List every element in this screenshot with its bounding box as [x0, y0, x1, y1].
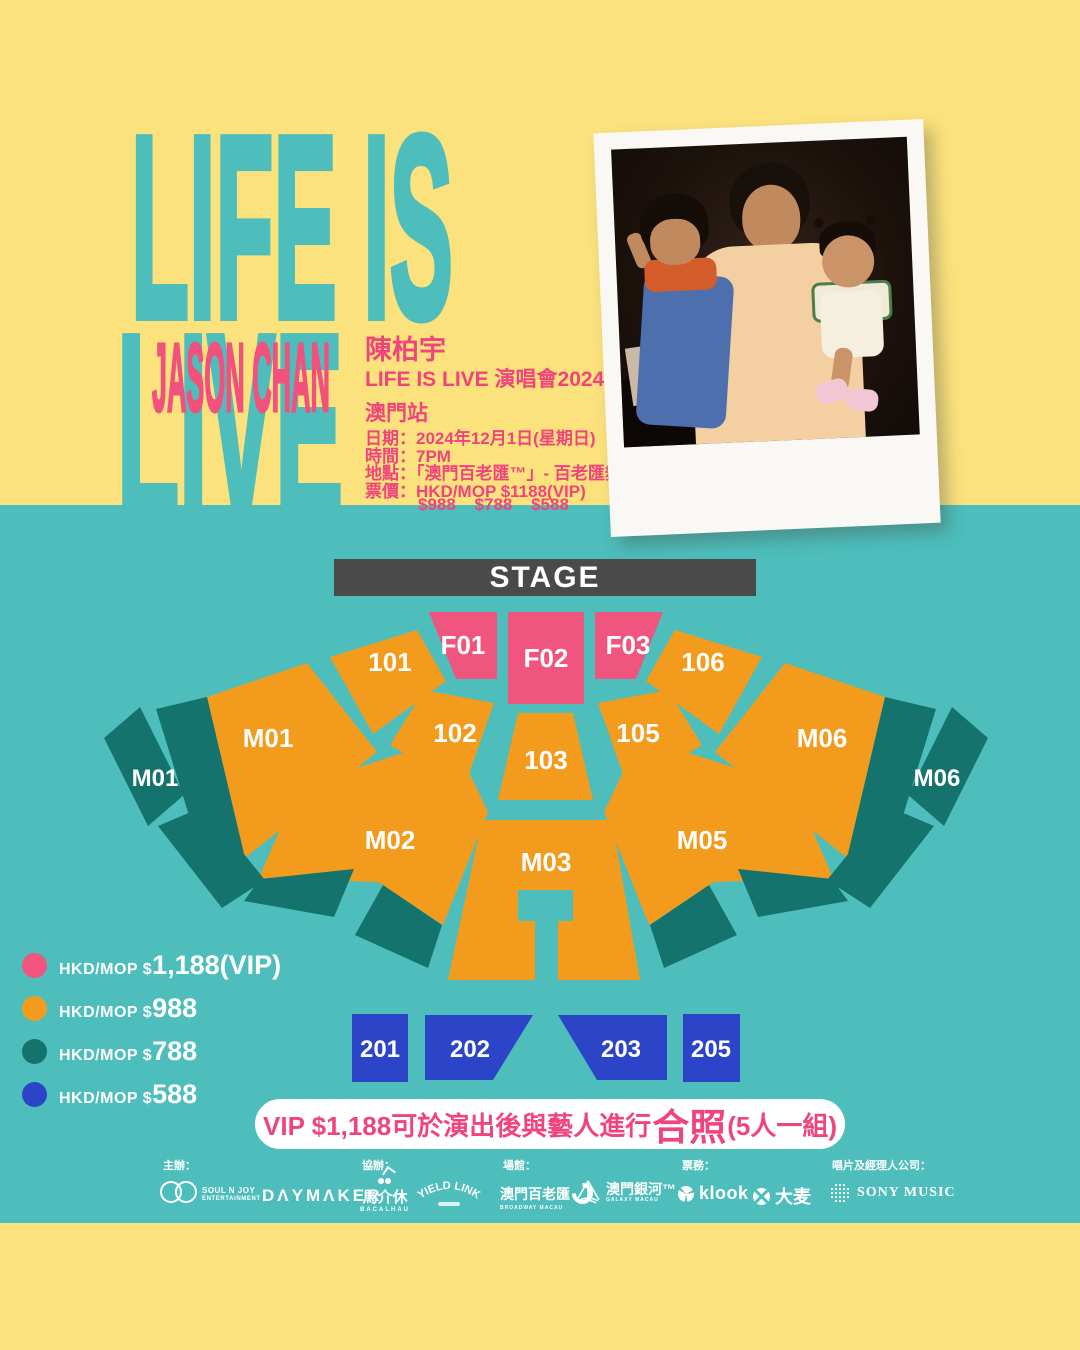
label-M06: M06	[797, 723, 848, 753]
label-M01: M01	[243, 723, 294, 753]
cat3-color-dot	[22, 1082, 47, 1107]
label-M03: M03	[521, 847, 572, 877]
photo-artist-with-kids	[611, 137, 920, 448]
label-106: 106	[681, 647, 724, 677]
bacalhau-zh-text: 馬介休	[360, 1190, 410, 1205]
damai-pinwheel-icon	[753, 1188, 770, 1205]
galaxy-zh-text: 澳門銀河™	[606, 1182, 676, 1196]
photo-kid-overalls	[635, 272, 734, 429]
label-102: 102	[433, 718, 476, 748]
stage-label: STAGE	[489, 561, 600, 594]
yield-link-arch-icon: YIELD LINK	[414, 1176, 484, 1210]
photo-baby-pigtail	[814, 218, 823, 227]
legend-prefix: HKD/MOP $	[59, 1090, 152, 1107]
sony-music-logo: SONY MUSIC	[830, 1183, 956, 1203]
label-202: 202	[450, 1036, 490, 1063]
soul-n-joy-rings-icon	[160, 1181, 197, 1208]
organizer-label: 主辦：	[163, 1157, 196, 1173]
ticketing-label: 票務：	[682, 1157, 715, 1173]
photo-baby-pigtail	[866, 216, 875, 225]
svg-text:YIELD LINK: YIELD LINK	[416, 1180, 482, 1201]
vip-color-dot	[22, 953, 47, 978]
legend-price-788: HKD/MOP $788	[59, 1036, 197, 1067]
klook-text: klook	[699, 1183, 749, 1204]
vip-photo-note: VIP $1,188可於演出後與藝人進行合照(5人一組)	[255, 1099, 845, 1149]
legend-price-588: HKD/MOP $588	[59, 1079, 197, 1110]
label-M06-side: M06	[914, 765, 961, 792]
label-M02: M02	[365, 825, 416, 855]
label-205: 205	[691, 1036, 731, 1063]
record-company-label: 唱片及經理人公司：	[832, 1157, 931, 1173]
label-201: 201	[360, 1036, 400, 1063]
legend-row-988: HKD/MOP $988	[22, 987, 281, 1030]
label-M01-side: M01	[132, 765, 179, 792]
galaxy-en-text: GALAXY MACAU	[606, 1198, 676, 1203]
legend-price-vip: HKD/MOP $1,188(VIP)	[59, 950, 281, 981]
legend-value: 988	[152, 993, 197, 1023]
vip-note-text: VIP $1,188可於演出後與藝人進行	[263, 1106, 651, 1143]
damai-text: 大麦	[775, 1183, 811, 1209]
bacalhau-logo: 馬介休 BACALHAU	[360, 1170, 410, 1213]
galaxy-fan-icon	[575, 1180, 601, 1204]
klook-icon	[678, 1186, 694, 1202]
damai-logo: 大麦	[753, 1183, 811, 1209]
broadway-en-text: BROADWAY MACAU	[500, 1206, 593, 1211]
vip-note-highlight: 合照	[652, 1097, 726, 1151]
legend-row-588: HKD/MOP $588	[22, 1073, 281, 1116]
event-city: 澳門站	[365, 397, 428, 427]
legend-value: 588	[152, 1079, 197, 1109]
polaroid-photo	[593, 119, 940, 537]
label-105: 105	[616, 718, 659, 748]
label-F01: F01	[441, 630, 486, 660]
klook-logo: klook	[678, 1183, 749, 1204]
legend-price-988: HKD/MOP $988	[59, 993, 197, 1024]
venue-label: 場館：	[503, 1157, 536, 1173]
cat2-color-dot	[22, 1039, 47, 1064]
cat1-color-dot	[22, 996, 47, 1021]
photo-baby-dress	[820, 290, 885, 359]
legend-row-788: HKD/MOP $788	[22, 1030, 281, 1073]
vip-note-tail: (5人一組)	[727, 1106, 837, 1143]
sony-globe-icon	[830, 1183, 850, 1203]
yield-link-text: YIELD LINK	[416, 1180, 482, 1201]
legend-value: 788	[152, 1036, 197, 1066]
legend-prefix: HKD/MOP $	[59, 961, 152, 978]
legend-prefix: HKD/MOP $	[59, 1047, 152, 1064]
legend-prefix: HKD/MOP $	[59, 1004, 152, 1021]
broadway-zh-text: 澳門百老匯	[500, 1187, 570, 1201]
ticket-price-line2: $988 $788 $588	[418, 495, 569, 515]
label-M05: M05	[677, 825, 728, 855]
label-103: 103	[524, 745, 567, 775]
photo-kid-face	[649, 218, 701, 266]
bacalhau-en-text: BACALHAU	[360, 1207, 410, 1213]
legend-row-vip: HKD/MOP $1,188(VIP)	[22, 944, 281, 987]
artist-name-zh: 陳柏宇	[365, 328, 446, 367]
soul-n-joy-logo: SOUL N JOYENTERTAINMENT	[160, 1181, 261, 1208]
photo-baby-shoe	[845, 387, 879, 412]
artist-name-en: JASON CHAN	[152, 323, 330, 432]
section-M03	[448, 820, 640, 980]
event-title: LIFE IS LIVE 演唱會2024	[365, 363, 604, 393]
label-101: 101	[368, 647, 411, 677]
label-F03: F03	[606, 630, 651, 660]
price-legend: HKD/MOP $1,188(VIP) HKD/MOP $988 HKD/MOP…	[22, 944, 281, 1116]
soul-n-joy-subtext: ENTERTAINMENT	[202, 1196, 261, 1203]
cherry-icon	[377, 1170, 393, 1184]
sony-music-text: SONY MUSIC	[857, 1185, 956, 1201]
label-F02: F02	[524, 643, 569, 673]
concert-poster: LIFE IS LIVE JASON CHAN 陳柏宇 LIFE IS LIVE…	[0, 0, 1080, 1350]
soul-n-joy-text: SOUL N JOY	[202, 1187, 261, 1196]
galaxy-macau-logo: 澳門銀河™ GALAXY MACAU	[575, 1180, 676, 1204]
label-203: 203	[601, 1036, 641, 1063]
legend-value: 1,188(VIP)	[152, 950, 281, 980]
yield-link-logo: YIELD LINK	[414, 1176, 484, 1215]
